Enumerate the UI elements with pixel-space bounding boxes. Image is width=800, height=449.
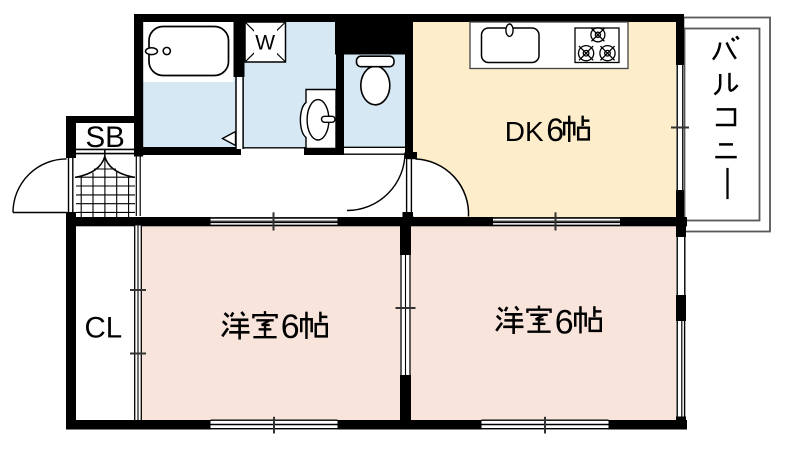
svg-text:6: 6 [281,308,300,346]
svg-text:6: 6 [546,112,564,148]
svg-text:CL: CL [85,312,123,345]
svg-text:DK: DK [505,116,544,147]
svg-text:W: W [255,32,275,55]
svg-text:6: 6 [555,304,574,342]
svg-text:SB: SB [86,121,125,154]
